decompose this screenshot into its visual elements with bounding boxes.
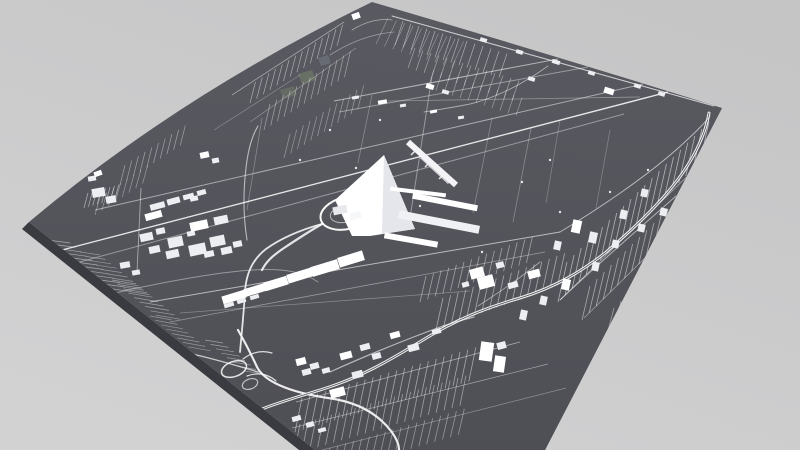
map-3d-render — [0, 0, 800, 450]
map-3d-viewport — [0, 0, 800, 450]
